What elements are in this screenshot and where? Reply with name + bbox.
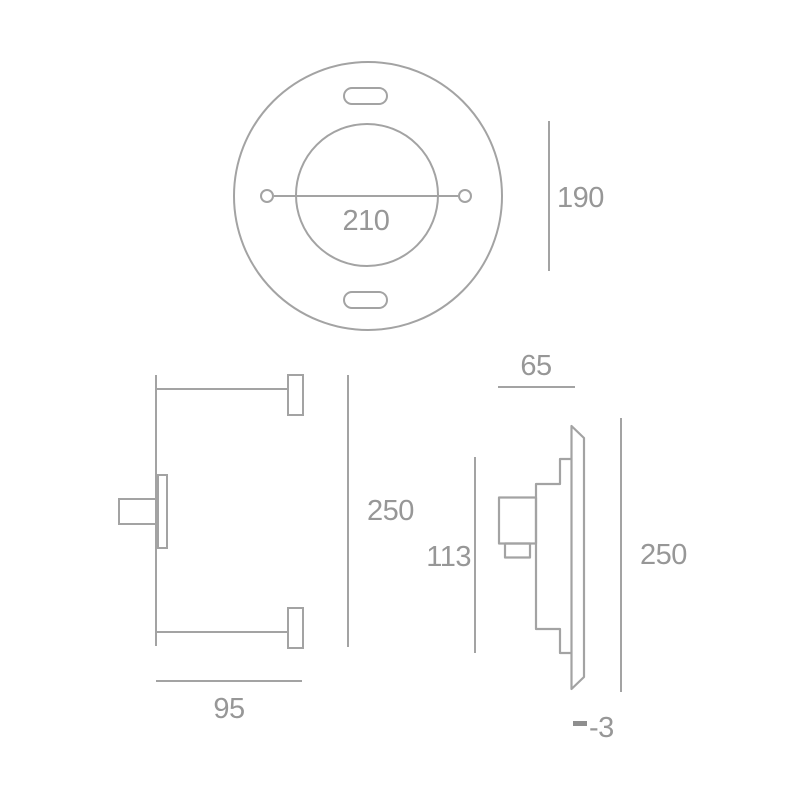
dim-113-extension-line — [474, 457, 476, 653]
mounting-hole-right — [458, 189, 472, 203]
bottom-arm-line — [157, 631, 288, 633]
dim-protrusion-label: -3 — [589, 713, 614, 743]
mounting-clip-top — [287, 374, 304, 416]
dim-height-label-side-view: 250 — [640, 540, 687, 570]
mounting-hole-left — [260, 189, 274, 203]
mounting-clip-bottom — [287, 607, 304, 649]
faceplate-profile — [572, 426, 585, 689]
dim-width-label-side-view: 65 — [501, 351, 571, 381]
top-arm-line — [157, 388, 288, 390]
dim-95-extension-line — [156, 680, 302, 682]
junction-box-front — [118, 498, 157, 525]
dim-recess-depth-label: 113 — [411, 542, 471, 572]
dim-depth-label-front-view: 95 — [194, 694, 264, 724]
dim-65-extension-line — [498, 386, 575, 388]
dim-hole-distance-label: 210 — [331, 206, 401, 236]
junction-box-tab — [505, 544, 530, 558]
junction-box-side — [499, 498, 536, 544]
recessed-housing-profile — [536, 459, 571, 653]
dim-190-extension-line — [548, 121, 550, 271]
dimension-drawing: 210 190 250 95 65 113 250 -3 — [0, 0, 800, 800]
dim-250-extension-line-side — [620, 418, 622, 692]
dim-height-label-top-view: 190 — [557, 183, 604, 213]
dim-height-label-front-view: 250 — [367, 496, 414, 526]
protrusion-tick-mark — [573, 721, 587, 726]
hole-distance-line — [274, 195, 458, 197]
mounting-slot-top — [343, 87, 388, 105]
dim-250-extension-line-front — [347, 375, 349, 647]
back-housing-rect — [157, 474, 168, 549]
mounting-slot-bottom — [343, 291, 388, 309]
